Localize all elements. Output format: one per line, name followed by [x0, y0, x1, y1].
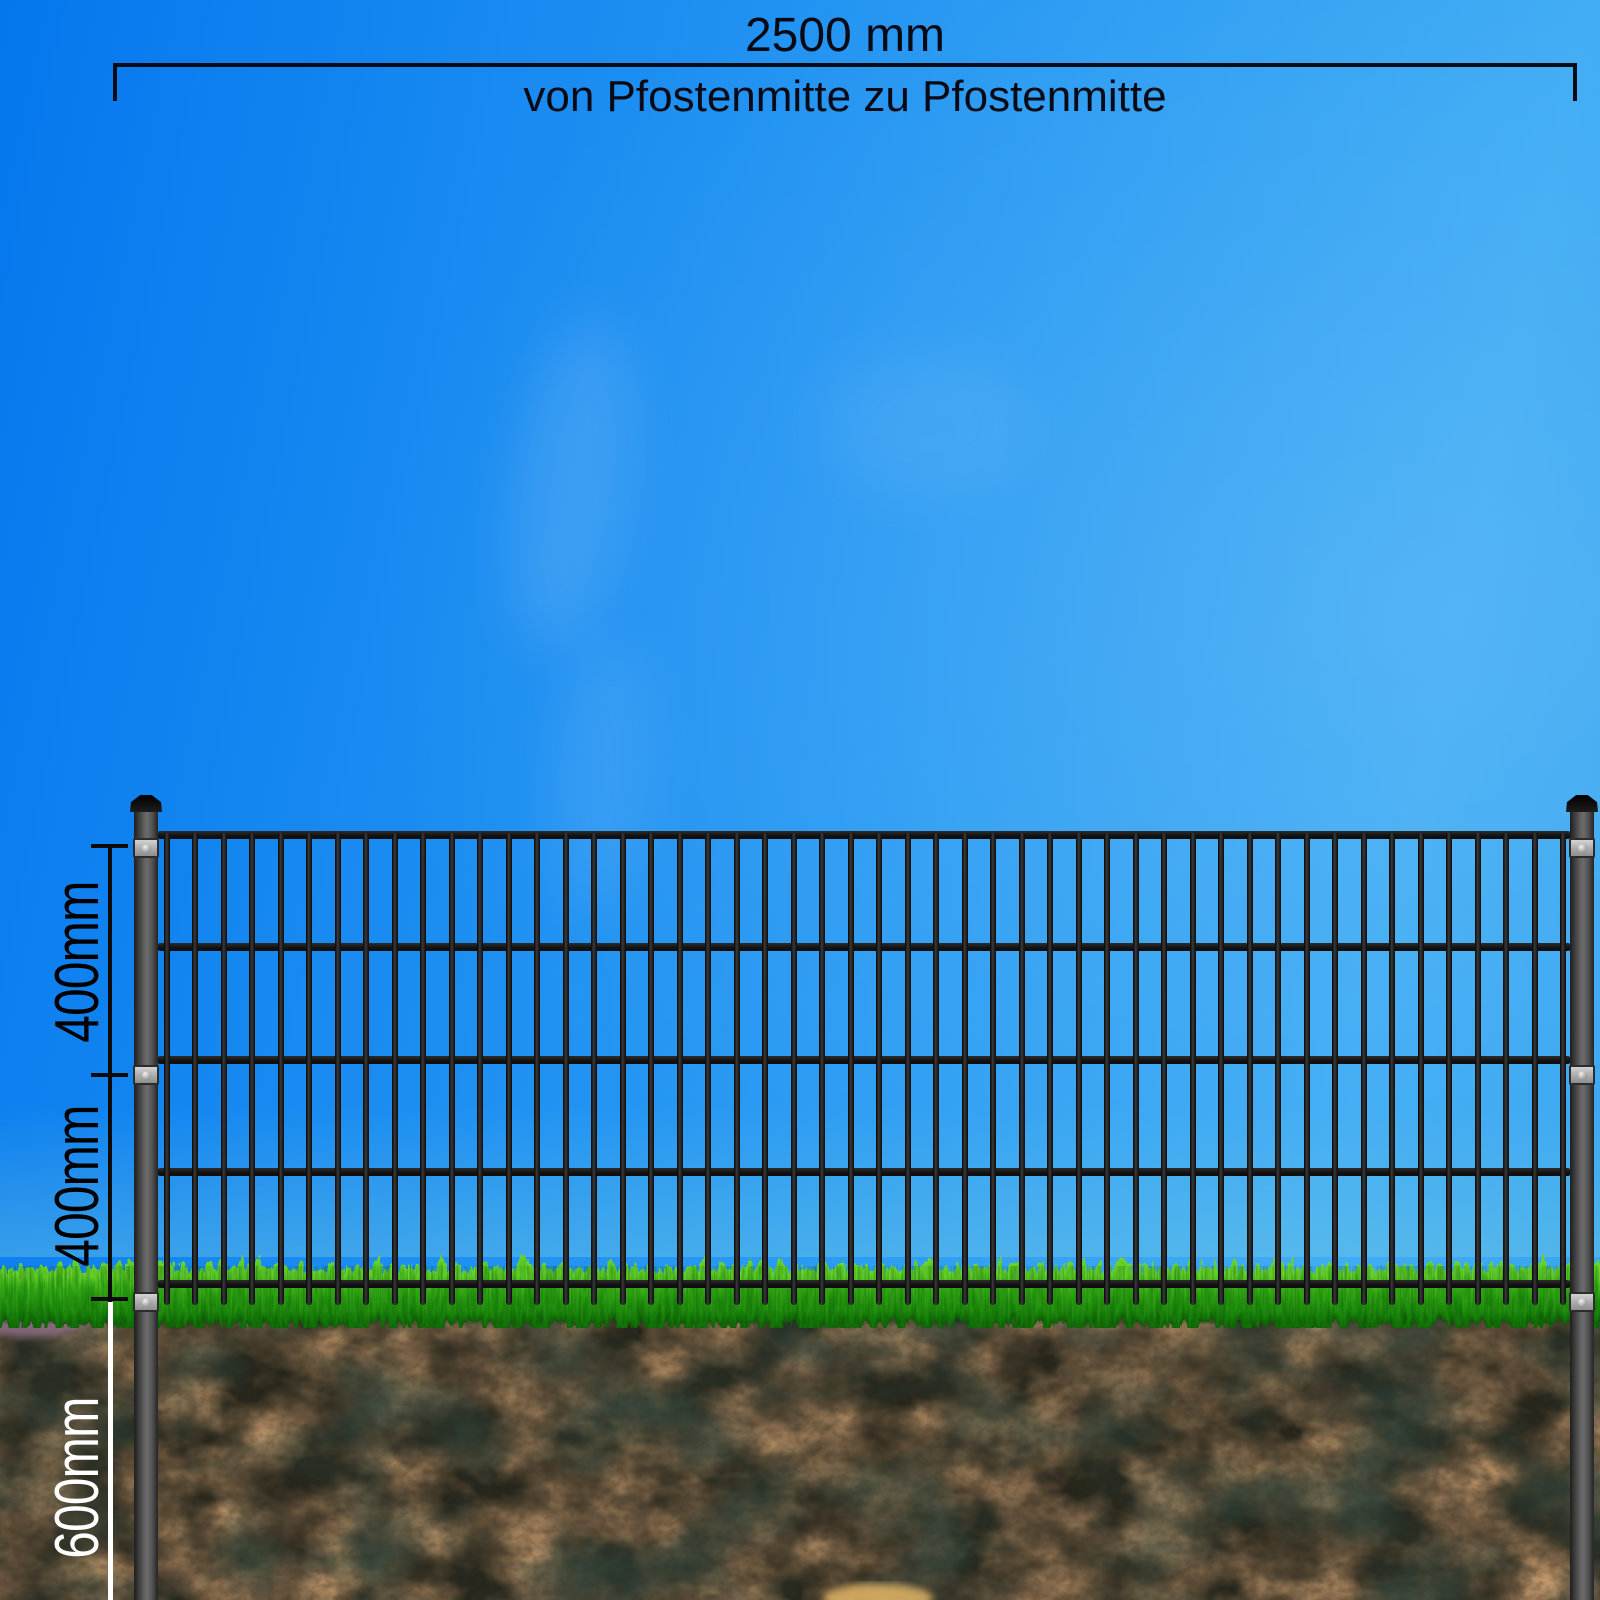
panel-bar: [363, 833, 369, 1305]
panel-bracket: [133, 838, 159, 858]
post-embed-depth-label: 600mm: [46, 1358, 110, 1598]
panel-bar: [506, 833, 512, 1305]
panel-bar: [1275, 833, 1281, 1305]
panel-bar: [1532, 833, 1538, 1305]
panel-bar: [449, 833, 455, 1305]
panel-rail: [158, 1056, 1570, 1064]
panel-bar: [335, 833, 341, 1305]
panel-bar: [762, 833, 768, 1305]
panel-bracket: [133, 1292, 159, 1312]
panel-bar: [164, 833, 170, 1305]
screw-icon: [142, 1298, 151, 1307]
panel-bar: [1418, 833, 1424, 1305]
panel-bar: [677, 833, 683, 1305]
panel-rail: [158, 831, 1570, 839]
panel-bar: [648, 833, 654, 1305]
panel-rail: [158, 1280, 1570, 1288]
panel-bracket: [1569, 838, 1595, 858]
panel-bracket: [133, 1065, 159, 1085]
panel-bar: [1389, 833, 1395, 1305]
panel-bar: [1560, 833, 1566, 1305]
panel-bar: [1247, 833, 1253, 1305]
panel-bar: [962, 833, 968, 1305]
panel-bar: [1218, 833, 1224, 1305]
panel-bar: [1047, 833, 1053, 1305]
panel-bar: [848, 833, 854, 1305]
span-dimension-label: 2500 mm: [113, 8, 1577, 63]
panel-bar: [1190, 833, 1196, 1305]
panel-bar: [620, 833, 626, 1305]
soil-cross-section: [0, 1308, 1600, 1600]
panel-bar: [1019, 833, 1025, 1305]
cloud-wisp: [820, 350, 1030, 500]
panel-rail: [158, 1168, 1570, 1176]
span-dimension-note: von Pfostenmitte zu Pfostenmitte: [113, 72, 1577, 122]
panel-bar: [1332, 833, 1338, 1305]
panel-bar: [192, 833, 198, 1305]
panel-bar: [249, 833, 255, 1305]
panel-bar: [1446, 833, 1452, 1305]
panel-bar: [705, 833, 711, 1305]
panel-bracket: [1569, 1292, 1595, 1312]
panel-bar: [734, 833, 740, 1305]
panel-bar: [392, 833, 398, 1305]
panel-bar: [791, 833, 797, 1305]
panel-bar: [1304, 833, 1310, 1305]
panel-bar: [819, 833, 825, 1305]
panel-bar: [905, 833, 911, 1305]
panel-bar: [1361, 833, 1367, 1305]
panel-bar: [1161, 833, 1167, 1305]
screw-icon: [1578, 1298, 1587, 1307]
panel-bar: [1475, 833, 1481, 1305]
panel-bar: [990, 833, 996, 1305]
right-post: [1570, 812, 1594, 1600]
span-dimension-line: [113, 63, 1577, 67]
panel-bar: [933, 833, 939, 1305]
panel-bar: [876, 833, 882, 1305]
panel-bar: [306, 833, 312, 1305]
panel-bar: [1133, 833, 1139, 1305]
panel-bracket: [1569, 1065, 1595, 1085]
upper-panel-height-label: 400mm: [46, 842, 110, 1082]
left-post: [134, 812, 158, 1600]
panel-bar: [221, 833, 227, 1305]
fence-dimension-diagram: 2500 mm von Pfostenmitte zu Pfostenmitte…: [0, 0, 1600, 1600]
panel-bar: [477, 833, 483, 1305]
screw-icon: [142, 1071, 151, 1080]
lower-panel-height-label: 400mm: [46, 1066, 110, 1306]
panel-bar: [1503, 833, 1509, 1305]
screw-icon: [142, 844, 151, 853]
panel-rail: [158, 943, 1570, 951]
panel-bar: [278, 833, 284, 1305]
cloud-wisp: [493, 314, 653, 657]
panel-bar: [591, 833, 597, 1305]
screw-icon: [1578, 1071, 1587, 1080]
panel-bar: [534, 833, 540, 1305]
panel-bar: [420, 833, 426, 1305]
panel-bar: [563, 833, 569, 1305]
screw-icon: [1578, 844, 1587, 853]
panel-bar: [1104, 833, 1110, 1305]
panel-bar: [1076, 833, 1082, 1305]
